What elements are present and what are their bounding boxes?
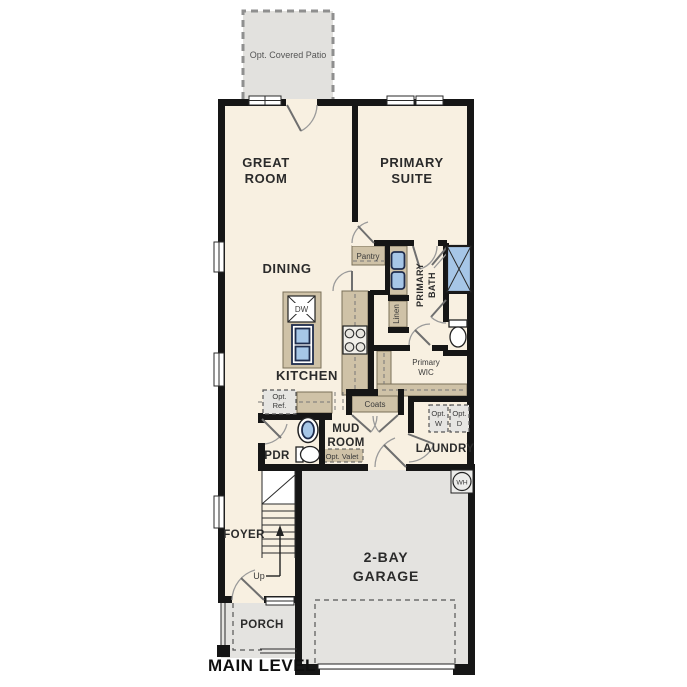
coats-label: Coats (365, 400, 386, 409)
wall-garage-bottom-right (453, 664, 475, 675)
patio-label: Opt. Covered Patio (250, 50, 327, 60)
wall-pdr-right (319, 420, 325, 465)
primary-wic-label-1: Primary (412, 358, 440, 367)
primary-wic-label-2: WIC (418, 368, 434, 377)
opt-ref-label-1: Opt. (272, 392, 286, 401)
linen-label: Linen (392, 304, 401, 324)
opt-ref-label-2: Ref. (273, 401, 287, 410)
kitchen-sink (292, 325, 313, 364)
opt-washer-label-2: W (435, 419, 443, 428)
left-window-1 (214, 242, 224, 272)
wall-laundry-left (408, 397, 414, 433)
opt-dryer-label-2: D (457, 419, 463, 428)
wall-linen-bottom (388, 327, 409, 333)
wall-counter-back (368, 291, 374, 395)
dishwasher: DW (288, 296, 315, 322)
foyer-label: FOYER (223, 529, 265, 541)
pantry-label: Pantry (356, 252, 379, 261)
wall-greatroom-suite (352, 102, 358, 222)
opening-patio-door (286, 99, 317, 106)
great-room-label-2: ROOM (245, 171, 288, 186)
wall-pantry-right (385, 243, 390, 295)
primary-suite-label-2: SUITE (391, 171, 432, 186)
opening-front-door (232, 596, 264, 603)
garage-label-1: 2-BAY (364, 549, 409, 565)
wall-coats-left (346, 389, 352, 415)
garage-label-2: GARAGE (353, 568, 419, 584)
opt-dryer-label-1: Opt. (452, 409, 466, 418)
wall-bath-wic-a (372, 345, 410, 351)
opt-washer-label-1: Opt. (431, 409, 445, 418)
pdr-label: PDR (264, 450, 290, 462)
garage-door (318, 664, 455, 669)
laundry-label: LAUNDRY (416, 443, 475, 455)
shower (447, 246, 471, 292)
opt-washer-box: Opt. W (429, 405, 448, 432)
water-heater: WH (451, 470, 473, 493)
pdr-toilet (296, 447, 320, 463)
great-room-label-1: GREAT (242, 155, 290, 170)
wall-right-garage (468, 464, 475, 675)
mud-room-label-2: ROOM (327, 437, 364, 449)
dishwasher-label: DW (295, 305, 309, 314)
wall-wc-left (443, 294, 449, 322)
wall-vanity-bottom (388, 295, 409, 301)
greatroom-window (249, 96, 281, 105)
primary-suite-label-1: PRIMARY (380, 155, 444, 170)
wall-foyer-garage (295, 470, 302, 670)
primary-toilet (449, 320, 467, 347)
kitchen-label: KITCHEN (276, 368, 338, 383)
range-stove (343, 326, 367, 354)
opt-ref-box: Opt. Ref. (258, 390, 296, 414)
wall-wic-laundry (408, 396, 468, 402)
opt-dryer-box: Opt. D (450, 405, 469, 432)
primary-bath-label-2: BATH (427, 272, 437, 298)
wall-wc-bottom (443, 350, 474, 356)
suite-window-2 (416, 96, 443, 105)
water-heater-label: WH (456, 480, 467, 487)
main-level-label: MAIN LEVEL (208, 656, 316, 675)
opt-valet-label: Opt. Valet (326, 452, 360, 461)
floor-plan-page: Opt. Covered Patio (0, 0, 687, 687)
foyer-window (266, 597, 294, 605)
pdr-sink (298, 418, 318, 443)
primary-bath-label-1: PRIMARY (415, 263, 425, 307)
left-window-3 (214, 496, 224, 528)
left-window-2 (214, 353, 224, 386)
floor-plan-drawing: Opt. Covered Patio (0, 0, 687, 687)
suite-window-1 (387, 96, 414, 105)
opening-bath-door (414, 240, 438, 246)
dining-label: DINING (262, 261, 311, 276)
wall-mud-bottom-a (258, 464, 368, 471)
mud-room-label-1: MUD (332, 423, 359, 435)
optional-covered-patio: Opt. Covered Patio (243, 11, 333, 99)
wall-coats-right (398, 389, 404, 415)
up-label: Up (253, 571, 265, 581)
porch-label: PORCH (240, 619, 284, 631)
